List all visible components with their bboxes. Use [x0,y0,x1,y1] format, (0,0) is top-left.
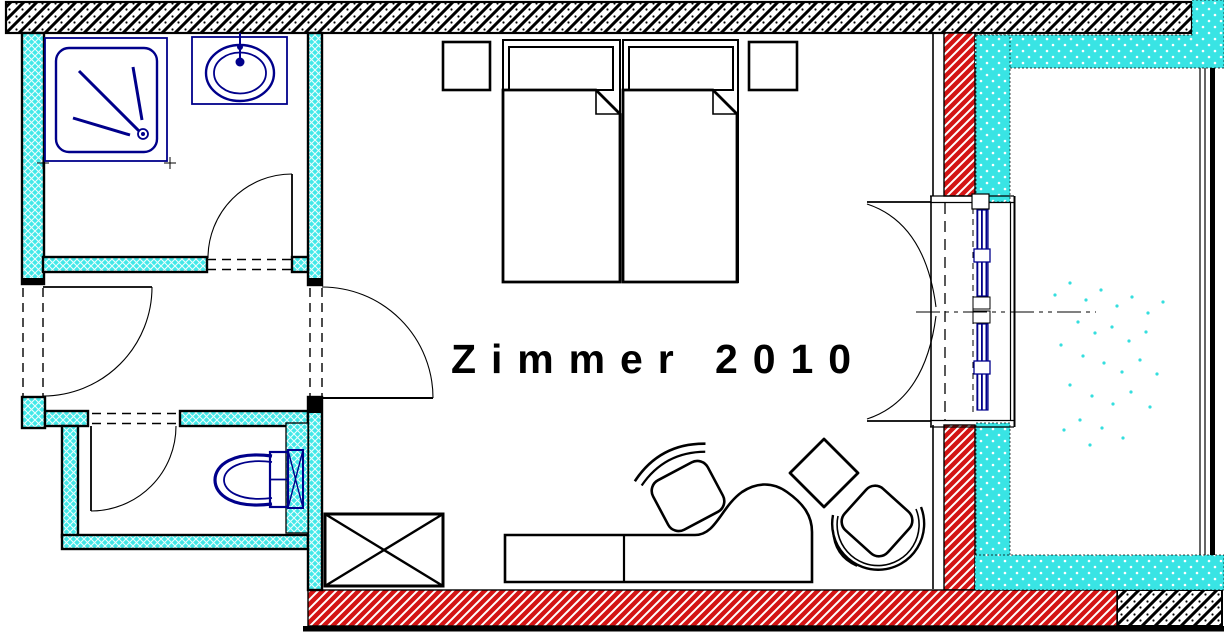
nightstand-right [749,42,797,90]
wall-wc-top-left [45,411,88,426]
window-sill-box [972,194,989,209]
shower-drain [141,132,145,136]
wardrobe-crossbox [325,514,443,586]
wall-cap-main-door [308,396,322,413]
bed-right-pillow [629,47,733,90]
wall-red-right-upper [944,33,975,196]
window-stile-lower [973,311,990,323]
wall-red-bottom [308,590,1117,626]
wall-cap-bath-right [308,278,322,285]
wall-corridor-corner [22,397,45,428]
nightstand-left [443,42,490,90]
wall-bottom-edge-line [303,626,1224,632]
bed-left-blanket [503,90,620,282]
wall-red-right-lower [944,425,975,590]
wall-wc-bottom [62,535,308,549]
bed-left [503,40,620,282]
insulation-right-lower [976,423,1010,557]
bed-left-pillow [509,47,613,90]
wall-cap-left [22,278,44,285]
bed-right [623,40,738,282]
wall-bath-right [308,33,322,285]
wall-bath-left [22,33,44,284]
bed-right-blanket [623,90,737,282]
insulation-bottom-band [975,555,1224,590]
wall-bath-bottom-left [43,257,207,272]
window-handle-lower [974,361,990,374]
washbasin-tap-icon [236,58,245,67]
window-handle-upper [974,249,990,262]
washbasin-tap-dot [237,44,243,50]
floor-plan: Zimmer 2010 [0,0,1224,632]
wall-wc-left [62,426,78,537]
window-stile-upper [973,297,990,309]
wall-bottom-neighbor-hatched [1117,590,1222,626]
floor-plan-drawing: Zimmer 2010 [0,0,1224,632]
insulation-right-upper [976,35,1010,202]
duct-shaft [286,423,308,533]
wall-wc-right [308,397,322,590]
wall-top-hatched [6,2,1192,33]
wall-bath-bottom-right [292,257,308,272]
balcony-railing-outer [1210,68,1215,555]
